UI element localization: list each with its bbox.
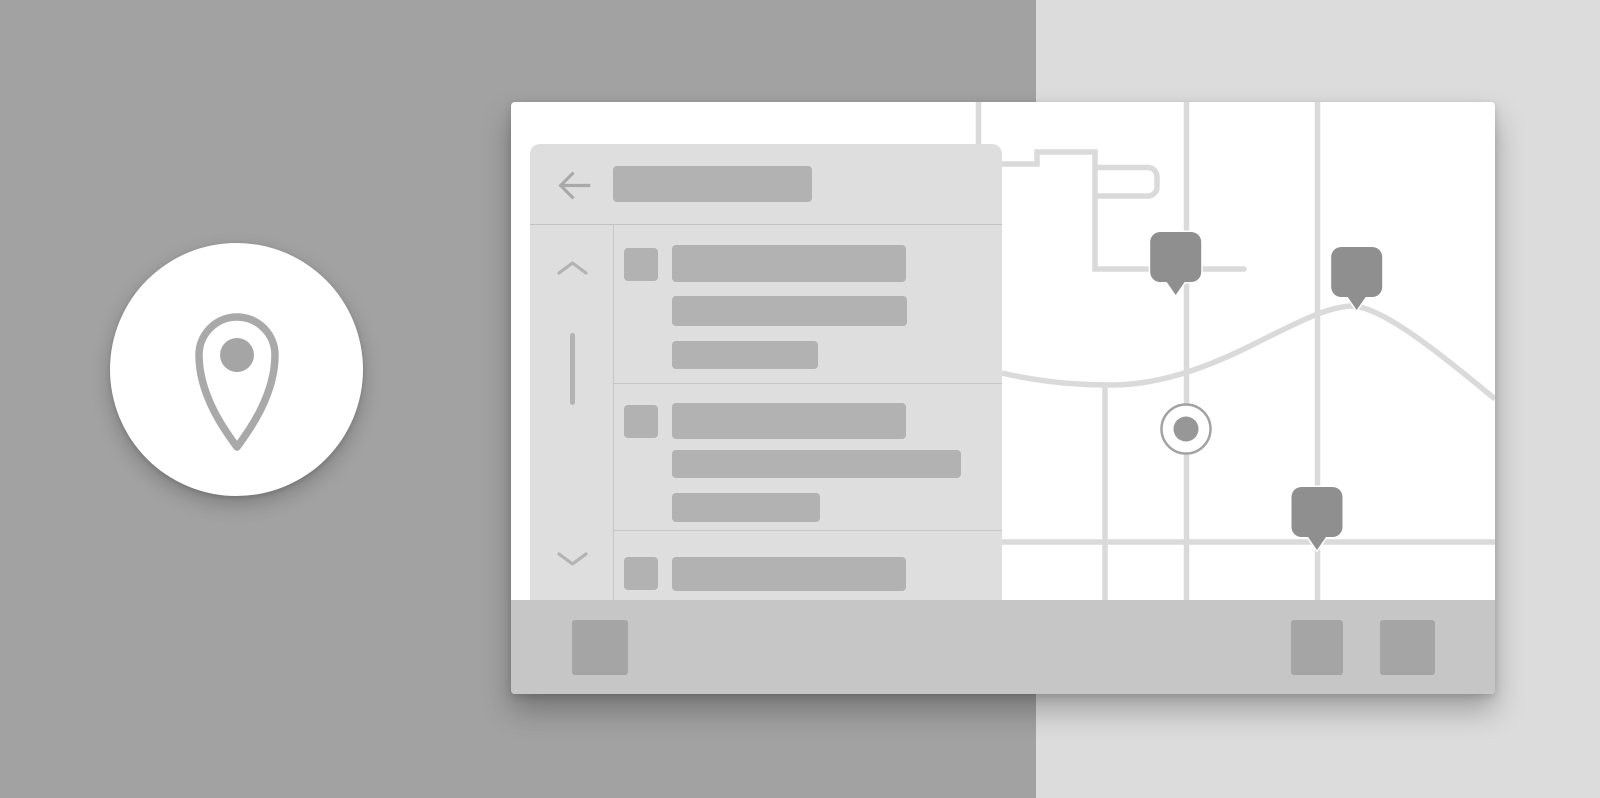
panel-title-placeholder [613,166,812,202]
panel-body [530,225,1002,600]
map-pin-marker[interactable] [1150,232,1201,295]
toolbar-button[interactable] [1291,620,1343,675]
item-checkbox[interactable] [624,248,658,281]
chevron-down-icon[interactable] [556,551,589,567]
current-location-marker [1162,405,1211,454]
map-pin-marker[interactable] [1331,247,1382,310]
text-placeholder-bar [672,341,818,369]
list-item[interactable] [614,384,1002,531]
location-pin-icon [187,303,287,451]
bottom-toolbar [511,600,1495,694]
map-app-window [511,102,1495,694]
map-roads [979,102,1496,600]
text-placeholder-bar [672,557,906,591]
road [1002,306,1495,399]
item-checkbox[interactable] [624,557,658,590]
text-placeholder-bar [672,296,907,326]
panel-header [530,144,1002,225]
results-panel [530,144,1002,600]
item-checkbox[interactable] [624,405,658,438]
toolbar-button[interactable] [1380,620,1435,675]
arrow-left-icon [556,167,593,204]
list-item[interactable] [614,225,1002,384]
results-list [614,225,1002,600]
back-button[interactable] [548,159,600,211]
text-placeholder-bar [672,450,961,478]
text-placeholder-bar [672,403,906,439]
scrollbar[interactable] [530,225,614,600]
scrollbar-thumb[interactable] [570,333,575,405]
location-badge [110,243,363,496]
text-placeholder-bar [672,245,906,282]
toolbar-button[interactable] [572,620,628,675]
road [1095,168,1157,197]
list-item[interactable] [614,531,1002,600]
chevron-up-icon[interactable] [556,260,589,276]
text-placeholder-bar [672,493,820,522]
